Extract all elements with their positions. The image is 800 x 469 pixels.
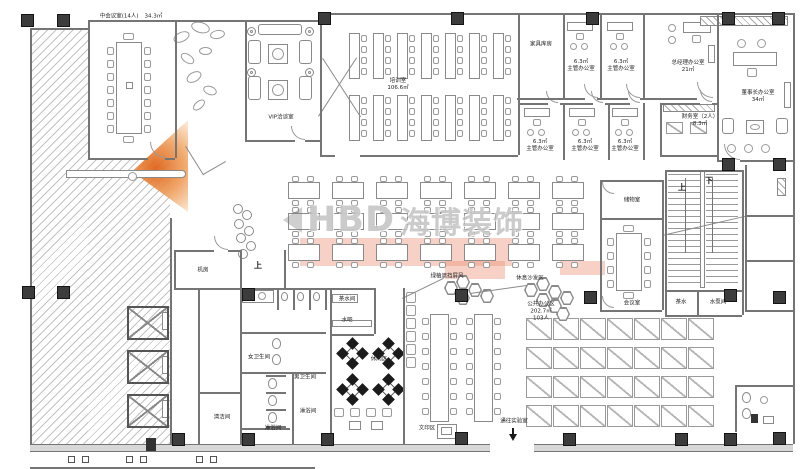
structural-column xyxy=(772,12,785,25)
guest-chair xyxy=(668,36,676,44)
structural-column xyxy=(321,433,334,446)
sup-area: 6.3㎡ xyxy=(567,59,595,66)
wall xyxy=(309,288,311,310)
person xyxy=(128,172,137,181)
workstation xyxy=(688,376,714,398)
label-plant-screen: 绿植遮挡屏风 xyxy=(430,274,463,281)
workstation xyxy=(526,376,552,398)
wall xyxy=(240,372,326,374)
leisure-chair xyxy=(356,347,369,360)
chair xyxy=(385,68,391,75)
label-stairs-up: 上 xyxy=(678,183,686,193)
meeting-table xyxy=(430,314,449,422)
hatch-corridor-left xyxy=(31,29,88,444)
workstation xyxy=(634,405,660,427)
guest-chair xyxy=(626,129,633,136)
chair xyxy=(422,408,429,415)
coffee-table xyxy=(268,80,288,100)
chair xyxy=(616,33,624,40)
chair xyxy=(481,130,487,137)
chairman-name: 董事长办公室 xyxy=(741,90,774,97)
chair xyxy=(457,35,463,42)
wall xyxy=(165,158,175,160)
chair xyxy=(409,68,415,75)
workstation xyxy=(688,318,714,340)
guest-chair xyxy=(583,129,590,136)
structural-column xyxy=(172,433,185,446)
open-office-capacity: 103人 xyxy=(527,315,555,322)
chair xyxy=(307,231,314,237)
sup-area: 6.3㎡ xyxy=(607,59,635,66)
chair xyxy=(422,333,429,340)
training-desk xyxy=(397,33,408,79)
structural-column xyxy=(57,14,70,27)
vent xyxy=(82,456,89,463)
leisure-chair xyxy=(356,383,369,396)
chair xyxy=(457,97,463,104)
chair xyxy=(450,408,457,415)
wall xyxy=(643,13,645,98)
crossed-cabinet xyxy=(777,178,786,196)
wall xyxy=(245,20,247,140)
door-arc xyxy=(214,236,228,250)
chair xyxy=(351,231,358,237)
chair xyxy=(433,57,439,64)
label-training: 培训室106.6㎡ xyxy=(387,78,408,92)
desk xyxy=(332,244,364,261)
wall xyxy=(697,290,699,315)
chair xyxy=(527,200,534,206)
chair xyxy=(512,262,519,268)
chair xyxy=(395,200,402,206)
chair xyxy=(144,125,151,133)
desk xyxy=(288,213,320,230)
training-desk xyxy=(421,95,432,141)
chair xyxy=(744,144,753,153)
leisure-chair xyxy=(382,373,395,386)
workstation xyxy=(661,405,687,427)
label-supervisor-3: 6.3㎡主管办公室 xyxy=(526,139,554,153)
wall xyxy=(228,250,240,252)
guest-chair xyxy=(538,129,545,136)
label-tea: 茶水 xyxy=(675,300,686,307)
label-mid-meeting: 中会议室(14人)34.3㎡ xyxy=(97,14,166,21)
wall xyxy=(662,180,664,310)
chair xyxy=(144,60,151,68)
wall xyxy=(665,315,742,317)
plant xyxy=(244,226,254,236)
chair xyxy=(385,130,391,137)
bench-seat xyxy=(382,408,392,417)
chair xyxy=(409,46,415,53)
leisure-chair xyxy=(346,337,359,350)
chair xyxy=(422,363,429,370)
plant xyxy=(234,219,244,229)
workstation xyxy=(580,347,606,369)
open-office-name: 公共办公区 xyxy=(527,302,555,309)
chair xyxy=(409,57,415,64)
label-machine-room: 机房 xyxy=(197,268,208,275)
chair xyxy=(395,262,402,268)
chair xyxy=(433,108,439,115)
chair xyxy=(307,262,314,268)
chair xyxy=(107,112,114,120)
structural-column xyxy=(722,158,735,171)
wall xyxy=(600,13,602,98)
wall xyxy=(320,13,322,155)
toilet xyxy=(742,392,751,403)
speaker xyxy=(247,27,256,36)
desk xyxy=(464,182,496,199)
toilet xyxy=(268,378,277,389)
chair xyxy=(450,393,457,400)
chair xyxy=(512,200,519,206)
wall xyxy=(518,13,520,155)
guest-chair xyxy=(737,39,746,48)
chair xyxy=(424,231,431,237)
desk xyxy=(508,182,540,199)
chair xyxy=(336,231,343,237)
chair xyxy=(107,47,114,55)
structural-column xyxy=(563,433,576,446)
chair xyxy=(468,200,475,206)
wall xyxy=(643,103,645,160)
chair xyxy=(457,119,463,126)
wall xyxy=(600,310,662,312)
sofa xyxy=(248,76,261,100)
chair xyxy=(336,200,343,206)
chair xyxy=(505,108,511,115)
door-arc xyxy=(700,90,712,102)
label-finance: 财务室（2人）8.3㎡ xyxy=(682,114,719,128)
chair xyxy=(439,231,446,237)
door-arc xyxy=(602,182,614,194)
chair xyxy=(494,333,501,340)
wall xyxy=(198,392,240,394)
chair xyxy=(144,86,151,94)
chair xyxy=(450,363,457,370)
chair xyxy=(644,252,651,260)
wall xyxy=(320,155,335,157)
floor-plan: HBD 海博装饰 中会议室(14人)34.3㎡ VIP洽谈室 培训室106.6㎡… xyxy=(0,0,800,469)
chair xyxy=(505,68,511,75)
guest-chair xyxy=(615,129,622,136)
office-desk xyxy=(612,108,638,117)
chair xyxy=(483,262,490,268)
chair xyxy=(607,252,614,260)
chair xyxy=(336,262,343,268)
wall xyxy=(360,155,518,157)
leisure-chair xyxy=(346,357,359,370)
chair xyxy=(385,46,391,53)
stair-flight xyxy=(706,174,738,286)
structural-column xyxy=(773,432,786,445)
lab-door-opening xyxy=(490,444,534,452)
finance-desk xyxy=(666,122,683,134)
coffee-table xyxy=(268,44,288,64)
structural-column xyxy=(584,291,597,304)
wall xyxy=(518,103,548,105)
elevator-shaft xyxy=(127,350,169,384)
label-general-manager: 总经理办公室21㎡ xyxy=(671,60,704,74)
wall xyxy=(198,288,200,445)
sofa xyxy=(299,76,312,100)
label-vip: VIP洽谈室 xyxy=(268,115,293,122)
chair xyxy=(571,231,578,237)
structural-column xyxy=(724,433,737,446)
label-sofa-area: 休息沙发区 xyxy=(516,276,544,283)
wall xyxy=(266,409,286,411)
chair xyxy=(505,46,511,53)
chair xyxy=(556,200,563,206)
wall xyxy=(660,103,662,155)
urinal xyxy=(313,292,320,301)
chair xyxy=(450,333,457,340)
chair xyxy=(422,348,429,355)
chair xyxy=(409,97,415,104)
door-arc xyxy=(546,91,558,103)
table-detail xyxy=(126,82,133,89)
workstation xyxy=(580,376,606,398)
desk xyxy=(288,244,320,261)
label-men-wc: 男卫生间 xyxy=(294,375,316,382)
bench-seat xyxy=(334,408,344,417)
label-storage: 储物室 xyxy=(624,198,641,205)
chair xyxy=(571,200,578,206)
chair xyxy=(292,262,299,268)
workstation xyxy=(526,405,552,427)
structural-column xyxy=(455,432,468,445)
chair xyxy=(505,97,511,104)
chair xyxy=(457,68,463,75)
structural-column xyxy=(22,286,35,299)
chair xyxy=(512,231,519,237)
chair xyxy=(457,130,463,137)
wall xyxy=(600,180,602,310)
desk xyxy=(464,213,496,230)
toilet xyxy=(268,395,277,406)
chair xyxy=(123,136,134,143)
chair xyxy=(576,33,584,40)
sofa xyxy=(258,24,302,35)
training-desk xyxy=(349,33,360,79)
structural-column xyxy=(675,433,688,446)
label-leisure: 休闲区 xyxy=(371,357,388,364)
chair xyxy=(107,60,114,68)
structural-column xyxy=(722,12,735,25)
wall xyxy=(30,28,88,30)
chair xyxy=(621,119,629,126)
door-arc xyxy=(291,126,305,140)
chair xyxy=(466,363,473,370)
chair xyxy=(439,200,446,206)
label-supervisor-2: 6.3㎡主管办公室 xyxy=(607,59,635,73)
bench-seat xyxy=(350,408,360,417)
vent xyxy=(140,456,147,463)
wall xyxy=(88,20,90,158)
structural-column xyxy=(773,291,786,304)
urinal xyxy=(297,292,304,301)
wall xyxy=(30,28,32,444)
sofa xyxy=(248,40,261,64)
chair xyxy=(483,200,490,206)
wall xyxy=(560,103,593,105)
wall xyxy=(330,288,332,445)
workstation xyxy=(634,318,660,340)
chair xyxy=(494,408,501,415)
label-shower-2: 淋浴间 xyxy=(265,426,282,433)
standpipe xyxy=(146,438,156,451)
label-chairman: 董事长办公室34㎡ xyxy=(741,90,774,104)
highlight-band xyxy=(560,261,605,275)
chair xyxy=(505,57,511,64)
chair xyxy=(385,35,391,42)
desk xyxy=(552,244,584,261)
chair xyxy=(481,46,487,53)
chair xyxy=(351,200,358,206)
plant xyxy=(185,69,204,86)
guest-chair xyxy=(621,43,628,50)
chair xyxy=(424,262,431,268)
workstation xyxy=(634,347,660,369)
sup-name: 主管办公室 xyxy=(611,146,639,153)
chair xyxy=(505,130,511,137)
elevator-shaft xyxy=(127,394,169,428)
wall xyxy=(403,288,405,445)
structural-column xyxy=(242,433,255,446)
chair xyxy=(433,97,439,104)
wall xyxy=(517,98,585,100)
chair xyxy=(457,46,463,53)
wall xyxy=(735,385,737,432)
chair xyxy=(468,262,475,268)
workstation xyxy=(607,318,633,340)
training-desk xyxy=(493,95,504,141)
chair xyxy=(466,318,473,325)
elevator-shaft xyxy=(127,306,169,340)
wall xyxy=(30,467,315,469)
training-desk xyxy=(421,33,432,79)
meeting-table xyxy=(616,233,642,291)
desk xyxy=(464,244,496,261)
wall xyxy=(660,155,717,157)
wall xyxy=(665,170,667,315)
structural-column xyxy=(318,12,331,25)
label-pantry: 茶水间 xyxy=(339,297,356,304)
workstation xyxy=(580,405,606,427)
side-table xyxy=(349,421,361,430)
wall xyxy=(325,288,327,310)
sink xyxy=(760,396,768,404)
chair xyxy=(385,119,391,126)
label-women-wc: 女卫生间 xyxy=(248,355,270,362)
desk xyxy=(552,182,584,199)
booth-seat xyxy=(406,318,416,329)
wall xyxy=(793,13,795,444)
leisure-chair xyxy=(382,337,395,350)
chair xyxy=(433,119,439,126)
chair xyxy=(481,57,487,64)
chair xyxy=(409,35,415,42)
chair xyxy=(450,378,457,385)
chair xyxy=(481,97,487,104)
chair xyxy=(409,130,415,137)
chair xyxy=(385,97,391,104)
cabinet xyxy=(708,45,715,63)
label-water-bar: 水吧 xyxy=(341,318,352,325)
plant xyxy=(242,210,252,220)
training-desk xyxy=(469,33,480,79)
wall xyxy=(170,218,172,444)
desk xyxy=(288,182,320,199)
chair xyxy=(361,130,367,137)
sofa xyxy=(722,118,734,134)
label-supervisor-1: 6.3㎡主管办公室 xyxy=(567,59,595,73)
chair xyxy=(361,108,367,115)
open-office-area: 202.7㎡ xyxy=(527,309,555,316)
wall xyxy=(563,103,565,160)
vent xyxy=(126,456,133,463)
chair xyxy=(481,35,487,42)
plant xyxy=(236,233,246,243)
sup-name: 主管办公室 xyxy=(526,146,554,153)
wall xyxy=(563,13,565,98)
chair xyxy=(527,231,534,237)
toilet xyxy=(742,408,751,419)
wall xyxy=(717,13,719,160)
label-meeting: 会议室 xyxy=(624,301,641,308)
training-desk xyxy=(373,95,384,141)
wall xyxy=(174,288,374,290)
chair xyxy=(380,262,387,268)
crossed-cabinet xyxy=(663,104,715,112)
chair xyxy=(747,68,757,77)
chair xyxy=(466,393,473,400)
leisure-chair xyxy=(336,383,349,396)
workstation xyxy=(580,318,606,340)
chair xyxy=(644,238,651,246)
chair xyxy=(556,231,563,237)
chair xyxy=(761,144,770,153)
wall xyxy=(266,375,286,377)
wall xyxy=(266,392,286,394)
booth-seat xyxy=(406,344,416,355)
chair xyxy=(123,33,134,40)
training-desk xyxy=(445,95,456,141)
chair xyxy=(644,266,651,274)
guest-chair xyxy=(527,129,534,136)
wall xyxy=(660,103,700,105)
chair xyxy=(433,46,439,53)
mid-meeting-area: 34.3㎡ xyxy=(145,14,163,21)
label-shower: 淋浴间 xyxy=(300,409,317,416)
wall xyxy=(245,140,295,142)
copier-detail xyxy=(441,427,452,435)
desk xyxy=(376,182,408,199)
sup-area: 6.3㎡ xyxy=(571,139,599,146)
sup-name: 主管办公室 xyxy=(571,146,599,153)
training-desk xyxy=(445,33,456,79)
chair xyxy=(292,231,299,237)
sup-area: 6.3㎡ xyxy=(526,139,554,146)
chair xyxy=(307,200,314,206)
desk xyxy=(420,244,452,261)
chair xyxy=(409,108,415,115)
workstation xyxy=(634,376,660,398)
bench-seat xyxy=(366,408,376,417)
chair xyxy=(607,238,614,246)
wall xyxy=(597,98,628,100)
